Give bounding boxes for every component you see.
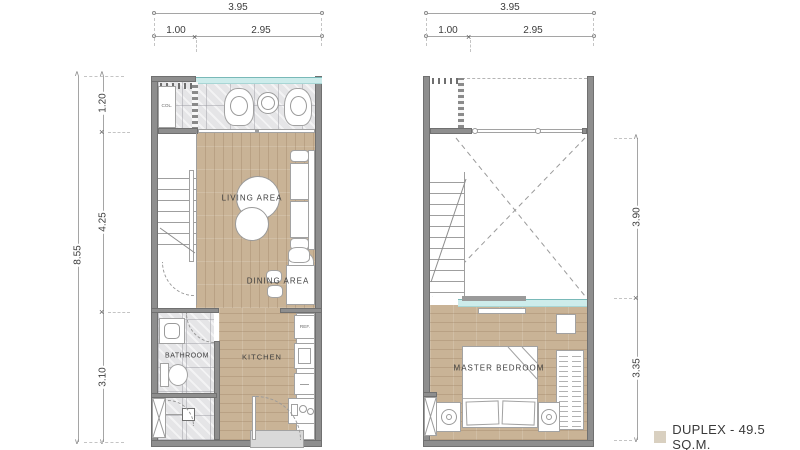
dim-label-height-bottom-f2: 3.35	[632, 356, 643, 379]
floor2-side-dimensions: 3.90 3.35	[0, 0, 800, 450]
extension-line	[614, 138, 632, 139]
legend-swatch	[654, 431, 666, 443]
dim-junction	[633, 294, 638, 303]
floorplan-canvas: COL. LIVING AREA DINING AR	[0, 0, 800, 450]
extension-line	[614, 440, 632, 441]
legend: DUPLEX - 49.5 SQ.M.	[654, 422, 800, 450]
dim-arrow-down	[633, 436, 639, 444]
dim-line	[637, 138, 638, 440]
dim-label-height-top-f2: 3.90	[632, 205, 643, 228]
dim-arrow-up	[633, 133, 639, 141]
extension-line	[614, 298, 632, 299]
legend-label: DUPLEX - 49.5 SQ.M.	[672, 422, 800, 450]
